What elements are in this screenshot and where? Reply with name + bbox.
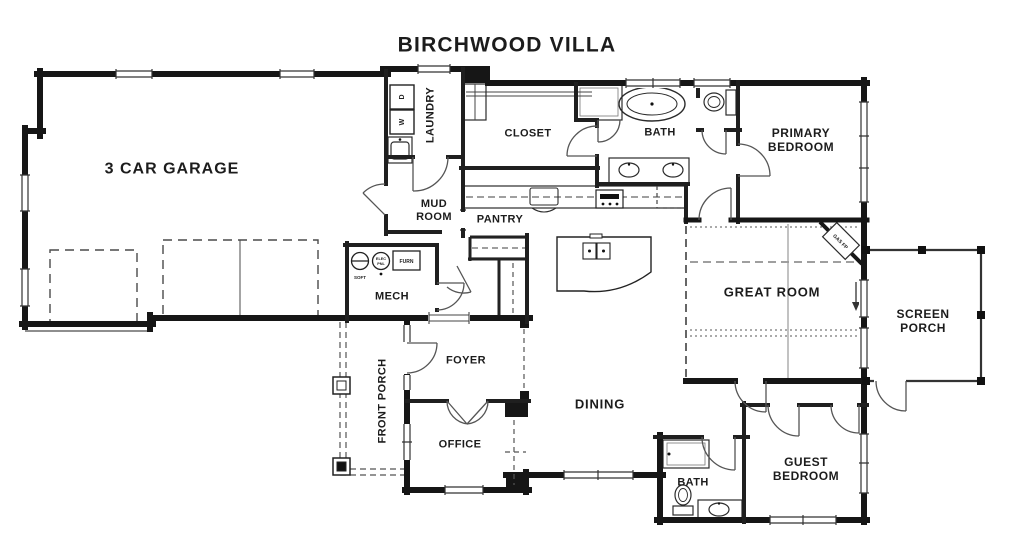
wall-openings xyxy=(401,210,470,374)
refrigerator xyxy=(657,184,685,208)
door-swings xyxy=(363,120,906,470)
room-label-dining: DINING xyxy=(575,396,625,411)
room-label-front-porch: FRONT PORCH xyxy=(377,358,390,443)
primary-shower xyxy=(576,84,622,120)
kitchen-counter xyxy=(464,186,686,208)
room-label-pantry: PANTRY xyxy=(477,214,523,227)
room-label-mech: MECH xyxy=(375,291,409,304)
mech-equipment: SOFT ELEC PNL FURN xyxy=(352,251,421,280)
plan-title: BIRCHWOOD VILLA xyxy=(398,34,617,59)
front-porch-outline xyxy=(340,322,404,475)
room-label-great-room: GREAT ROOM xyxy=(724,284,821,299)
svg-text:D: D xyxy=(399,94,406,99)
washer: W xyxy=(390,110,414,134)
room-label-primary-bedroom: PRIMARY BEDROOM xyxy=(754,126,849,154)
svg-text:SOFT: SOFT xyxy=(354,275,366,280)
floor-plan-drawing: D W SOFT ELEC PNL FURN xyxy=(0,0,1024,543)
svg-text:W: W xyxy=(399,118,406,125)
primary-tub xyxy=(619,87,685,121)
room-label-guest-bedroom: GUEST BEDROOM xyxy=(760,455,852,483)
room-label-mud-room: MUD ROOM xyxy=(410,198,458,224)
room-label-guest-bath: BATH xyxy=(677,477,708,490)
room-label-office: OFFICE xyxy=(439,439,482,452)
fireplace: GAS FP xyxy=(820,222,862,264)
room-label-primary-bath: BATH xyxy=(644,127,675,140)
guest-toilet xyxy=(673,485,693,515)
svg-text:PNL: PNL xyxy=(377,262,385,266)
guest-vanity xyxy=(698,500,742,519)
front-porch-columns xyxy=(333,377,350,475)
room-label-foyer: FOYER xyxy=(446,355,486,368)
pantry-shelves xyxy=(470,238,527,258)
closet-rod xyxy=(464,84,592,120)
room-label-laundry: LAUNDRY xyxy=(425,87,438,143)
kitchen-island xyxy=(557,234,651,292)
room-label-garage: 3 CAR GARAGE xyxy=(105,161,240,180)
stair-closet xyxy=(468,237,527,318)
primary-vanity xyxy=(609,158,689,183)
room-label-screen-porch: SCREEN PORCH xyxy=(881,307,965,335)
svg-text:ELEC: ELEC xyxy=(376,257,386,261)
primary-toilet xyxy=(704,90,736,115)
direction-arrow xyxy=(852,282,860,311)
dryer: D xyxy=(390,85,414,109)
laundry-sink xyxy=(388,137,412,163)
range-cooktop xyxy=(596,190,623,208)
floor-plan-page: D W SOFT ELEC PNL FURN xyxy=(0,0,1024,543)
svg-text:FURN: FURN xyxy=(400,259,414,265)
room-label-closet: CLOSET xyxy=(504,128,551,141)
